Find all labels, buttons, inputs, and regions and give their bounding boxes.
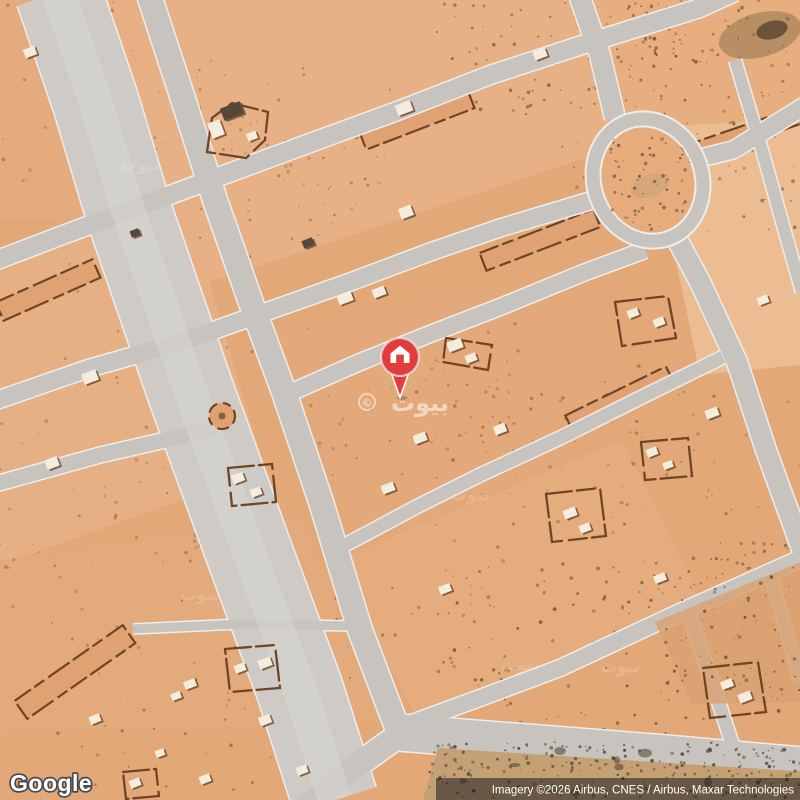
satellite-map[interactable]: بيوت بيوت بيوت بيوت بيوت © بيوت Google I… — [0, 0, 800, 800]
circular-structure — [209, 403, 235, 429]
google-logo[interactable]: Google — [10, 770, 92, 796]
map-viewport[interactable]: بيوت بيوت بيوت بيوت بيوت © بيوت Google I… — [0, 0, 800, 800]
watermark-tile: بيوت — [451, 485, 490, 504]
watermark-tile: بيوت — [601, 657, 640, 676]
watermark-tile: بيوت — [121, 155, 160, 174]
attribution-text: Imagery ©2026 Airbus, CNES / Airbus, Max… — [492, 785, 795, 797]
watermark-copyright-icon: © — [362, 397, 373, 410]
watermark-tile: بيوت — [181, 585, 220, 604]
attribution-bar: Imagery ©2026 Airbus, CNES / Airbus, Max… — [436, 778, 800, 800]
road — [133, 624, 356, 629]
pin-shadow — [397, 396, 408, 400]
watermark-tile: بيوت — [501, 655, 540, 674]
